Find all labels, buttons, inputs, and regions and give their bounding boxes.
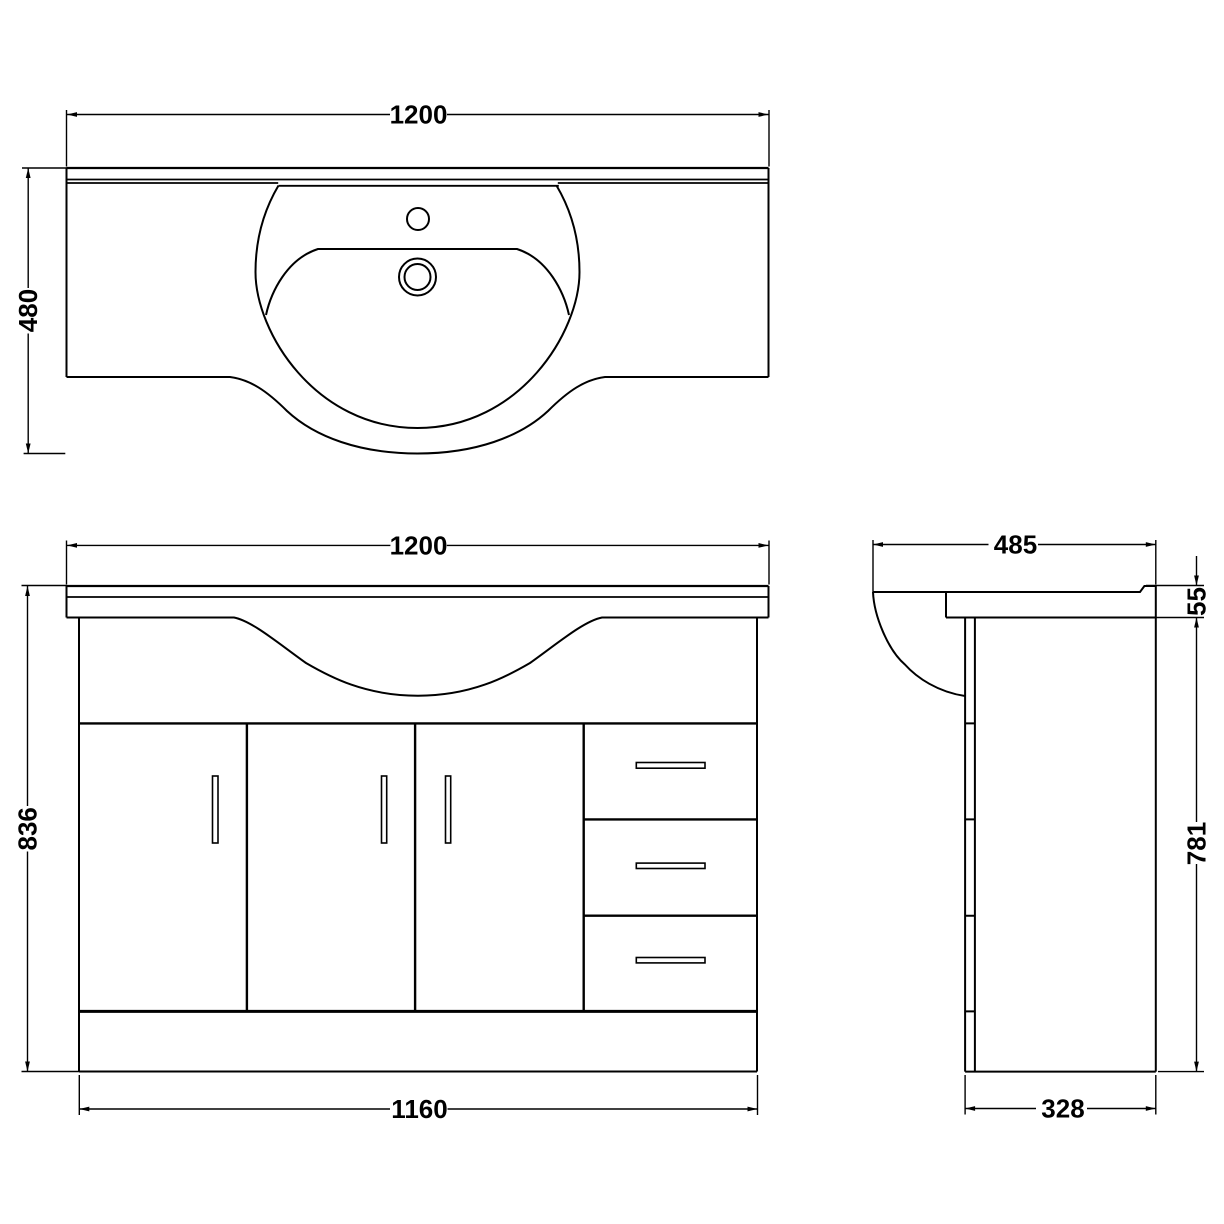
svg-text:328: 328 [1041, 1094, 1084, 1124]
svg-text:55: 55 [1181, 587, 1211, 616]
svg-text:1160: 1160 [391, 1094, 447, 1124]
svg-text:836: 836 [13, 807, 43, 850]
svg-text:1200: 1200 [390, 530, 448, 560]
svg-text:1200: 1200 [390, 100, 448, 130]
svg-text:485: 485 [994, 530, 1037, 560]
svg-text:480: 480 [13, 289, 43, 332]
svg-text:781: 781 [1181, 822, 1211, 865]
